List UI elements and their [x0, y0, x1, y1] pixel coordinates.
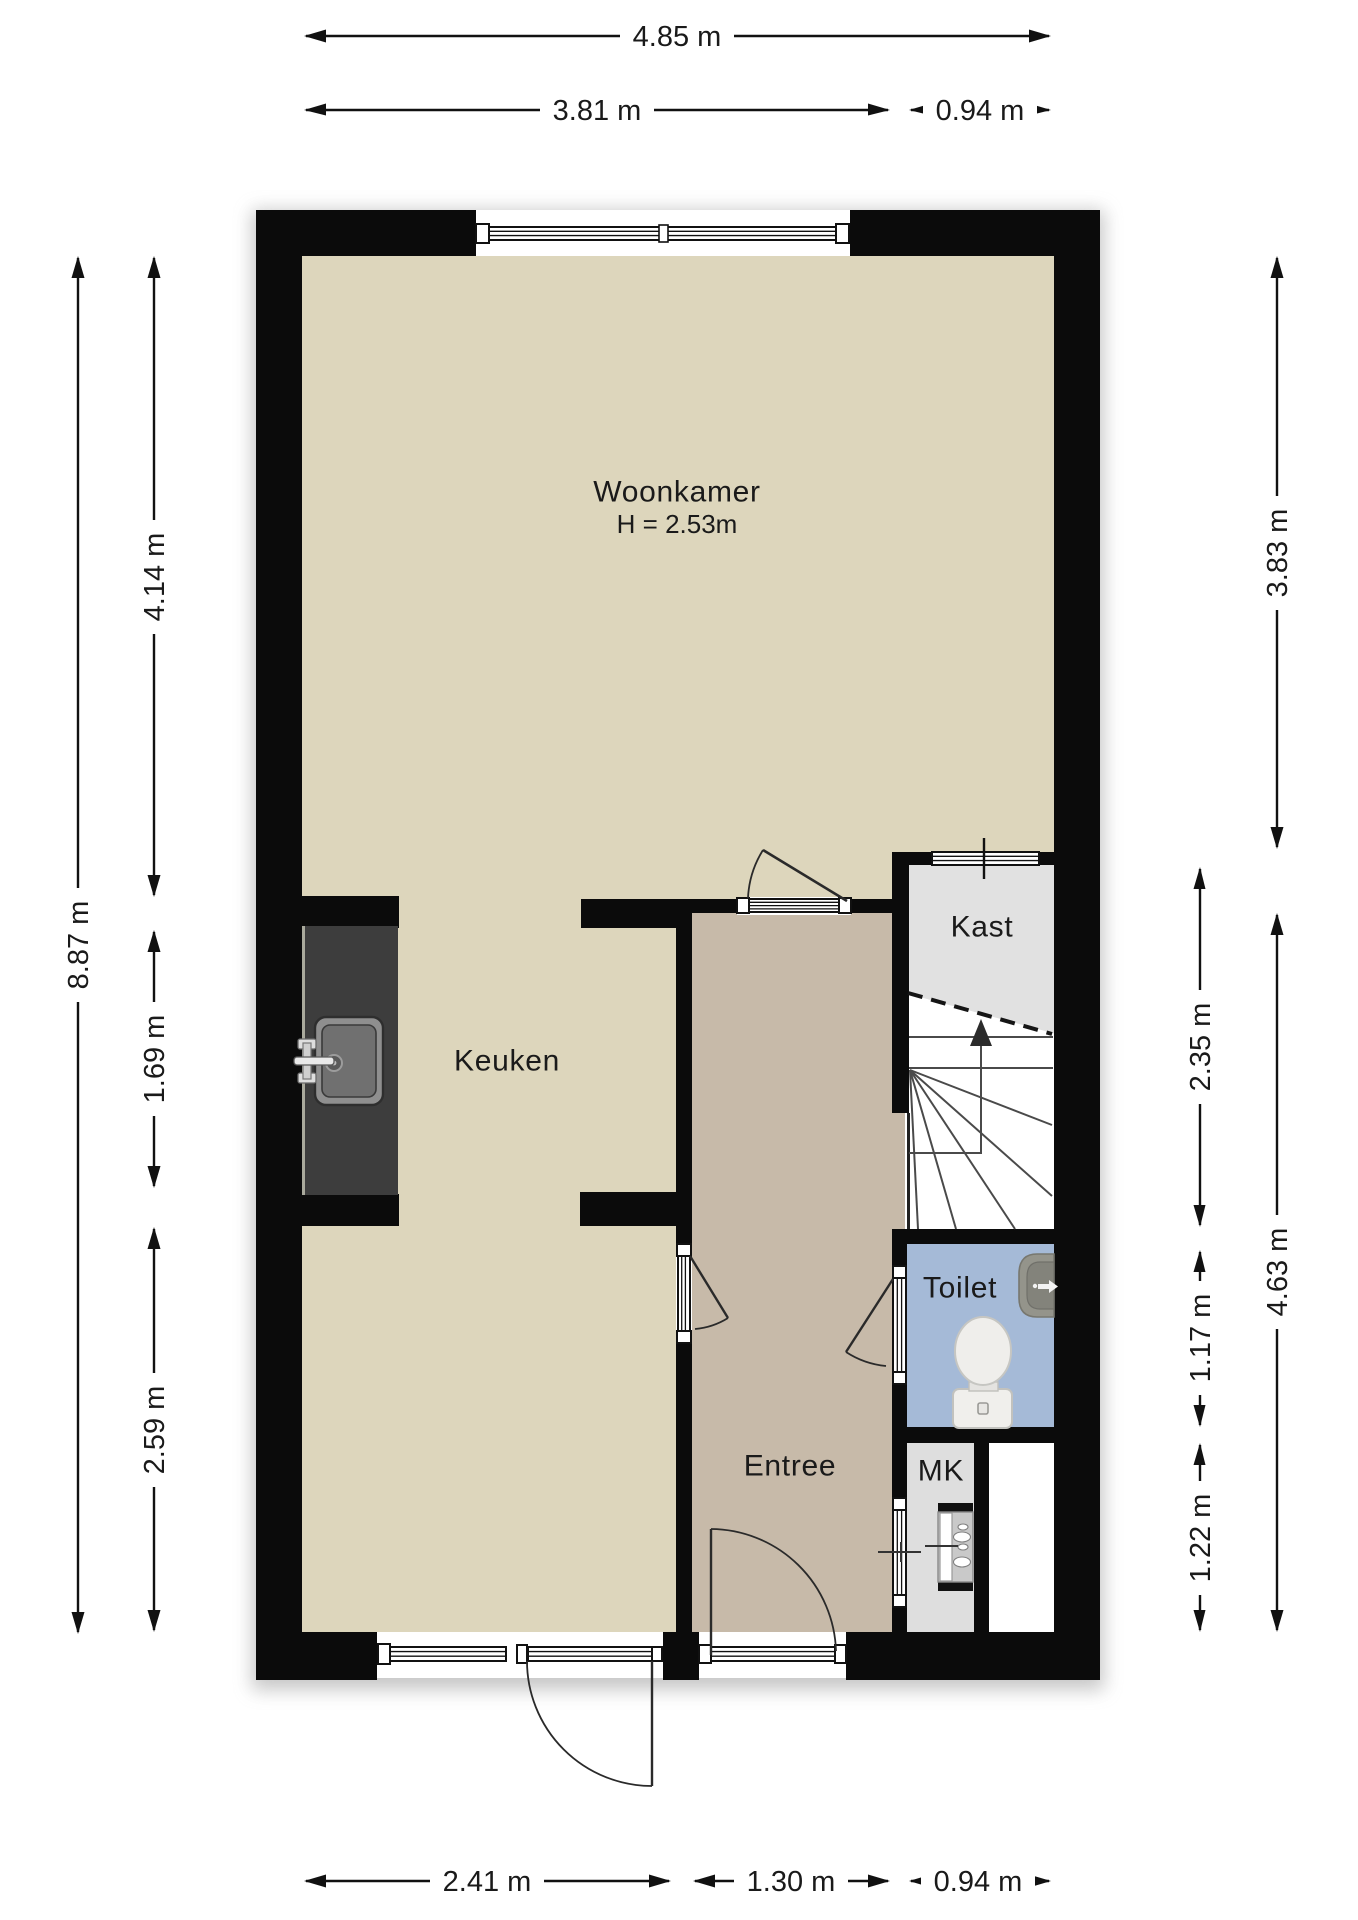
svg-text:Entree: Entree	[744, 1450, 837, 1483]
svg-text:4.85 m: 4.85 m	[633, 21, 722, 53]
svg-text:1.69 m: 1.69 m	[139, 1015, 171, 1104]
svg-text:H = 2.53m: H = 2.53m	[617, 509, 738, 539]
svg-text:4.14 m: 4.14 m	[139, 533, 171, 622]
svg-text:0.94 m: 0.94 m	[936, 95, 1025, 127]
svg-text:MK: MK	[918, 1455, 964, 1488]
svg-text:2.35 m: 2.35 m	[1185, 1003, 1217, 1092]
svg-text:1.17 m: 1.17 m	[1185, 1294, 1217, 1383]
svg-text:2.59 m: 2.59 m	[139, 1386, 171, 1475]
svg-text:8.87 m: 8.87 m	[63, 901, 95, 990]
svg-text:Toilet: Toilet	[923, 1272, 997, 1305]
svg-text:0.94 m: 0.94 m	[934, 1866, 1023, 1898]
svg-text:2.41 m: 2.41 m	[443, 1866, 532, 1898]
svg-text:4.63 m: 4.63 m	[1262, 1228, 1294, 1317]
svg-text:3.83 m: 3.83 m	[1262, 509, 1294, 598]
svg-text:Keuken: Keuken	[454, 1045, 560, 1078]
svg-text:Kast: Kast	[951, 911, 1014, 944]
svg-text:1.22 m: 1.22 m	[1185, 1494, 1217, 1583]
svg-text:1.30 m: 1.30 m	[747, 1866, 836, 1898]
svg-text:3.81 m: 3.81 m	[553, 95, 642, 127]
svg-text:Woonkamer: Woonkamer	[593, 476, 760, 509]
